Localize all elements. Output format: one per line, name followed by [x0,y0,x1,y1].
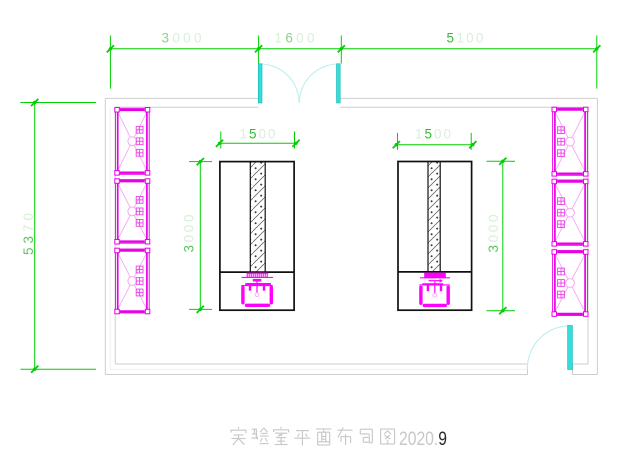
svg-text:2020.9: 2020.9 [399,429,447,450]
svg-text:1500: 1500 [415,126,451,141]
svg-text:1500: 1500 [240,126,276,141]
